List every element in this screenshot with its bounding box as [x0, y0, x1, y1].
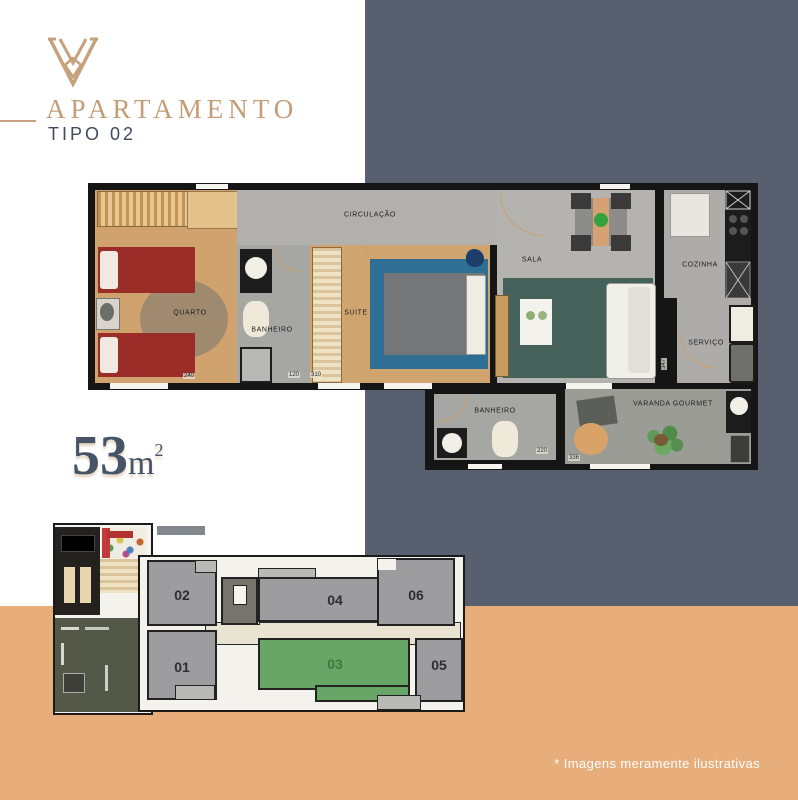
banheiro1-shower [240, 347, 272, 383]
kids-room-shelf [107, 531, 133, 538]
window-quarto-top [196, 184, 228, 189]
gourmet-counter [61, 535, 95, 552]
quarto-stool [100, 303, 114, 321]
sala-table-plant-2 [538, 311, 547, 320]
gym-equipment-3 [85, 627, 109, 630]
window-banheiro2-bottom [468, 464, 502, 469]
suite-wardrobe [312, 247, 342, 383]
varanda-sink [730, 397, 748, 415]
quarto-wardrobe [97, 191, 189, 227]
unit-03-label: 03 [327, 656, 343, 672]
room-label-sala: SALA [522, 257, 542, 264]
cozinha-burner-4 [740, 227, 748, 235]
main-floor-plan: QUARTO CIRCULAÇÃO BANHEIRO SUITE SALA CO… [88, 183, 758, 470]
cozinha-burner-1 [729, 215, 737, 223]
unit-05-label: 05 [431, 657, 447, 673]
quarto-bed-2-pillow [100, 337, 118, 373]
brand-logo [44, 34, 102, 90]
door-sala-varanda [566, 383, 612, 389]
window-suite-bottom-1 [318, 383, 360, 389]
room-label-banheiro1: BANHEIRO [251, 327, 292, 334]
room-label-suite: SUITE [344, 310, 368, 317]
banheiro1-sink [245, 257, 267, 279]
keyplan-gym [55, 618, 151, 712]
page-title: APARTAMENTO [46, 94, 298, 125]
room-label-servico: SERVIÇO [688, 340, 724, 347]
servico-washer [729, 343, 755, 383]
cozinha-sink-icon [725, 190, 751, 210]
gym-equipment-2 [61, 643, 64, 665]
cozinha-cooktop-icon [725, 261, 751, 299]
unit-02-notch [195, 560, 217, 573]
varanda-plant-pot [654, 434, 668, 446]
key-plan: 02 01 04 06 03 05 [45, 515, 465, 730]
keyplan-elevator-cab [233, 585, 247, 605]
banheiro2-toilet [492, 421, 518, 457]
quarto-desk [187, 191, 239, 229]
page-subtitle: TIPO 02 [48, 124, 136, 145]
dining-chair-1 [571, 193, 591, 209]
window-quarto-bottom [110, 383, 168, 389]
unit-04-label: 04 [327, 592, 343, 608]
cozinha-fridge [670, 193, 710, 237]
varanda-fridge [730, 435, 750, 463]
servico-wall [668, 298, 677, 383]
dining-chair-3 [571, 235, 591, 251]
unit-02-label: 02 [174, 587, 190, 603]
gourmet-bench-1 [64, 567, 75, 603]
dim-banheiro2: 220 [536, 448, 548, 454]
dim-suite: 310 [310, 372, 322, 378]
cozinha-burner-2 [740, 215, 748, 223]
varanda-table [574, 423, 608, 455]
dim-varanda: 336 [568, 455, 580, 461]
unit-06-step [378, 559, 396, 570]
sala-sofa-cushions [628, 287, 650, 373]
sala-console [495, 295, 509, 377]
dining-chair-2 [611, 193, 631, 209]
room-label-cozinha: COZINHA [682, 262, 718, 269]
sala-table-plant-1 [526, 311, 535, 320]
gym-equipment-5 [105, 665, 108, 691]
dim-banheiro: 120 [288, 372, 300, 378]
keyplan-wall-bar [157, 526, 205, 535]
disclaimer: * Imagens meramente ilustrativas [554, 756, 760, 771]
dining-chair-4 [611, 235, 631, 251]
sala-coffee-table [520, 299, 552, 345]
quarto-bed-1-pillow [100, 251, 118, 289]
keyplan-stairs [100, 559, 140, 593]
sala-cozinha-wall [655, 190, 664, 245]
dim-quarto: 240 [183, 373, 195, 379]
gym-equipment-1 [61, 627, 79, 630]
room-label-banheiro2: BANHEIRO [474, 408, 515, 415]
dining-plant [594, 213, 608, 227]
window-sala-top [600, 184, 630, 189]
gourmet-bench-2 [80, 567, 91, 603]
suite-beanbag [466, 249, 484, 267]
title-accent-line [0, 120, 36, 122]
servico-tank [729, 305, 755, 343]
window-suite-bottom-2 [384, 383, 432, 389]
suite-bed-pillows [466, 275, 486, 355]
unit-01-label: 01 [174, 659, 190, 675]
banheiro2-sink [442, 433, 462, 453]
room-label-circulacao: CIRCULAÇÃO [344, 212, 396, 219]
unit-01-notch [175, 685, 215, 700]
room-label-varanda: VARANDA GOURMET [633, 401, 713, 408]
room-label-quarto: QUARTO [173, 310, 206, 317]
dim-servico: 347 [661, 358, 667, 370]
cozinha-burner-3 [729, 227, 737, 235]
window-varanda-bottom [590, 464, 650, 469]
unit-05-notch [377, 695, 421, 710]
unit-06-label: 06 [408, 587, 424, 603]
gym-equipment-4 [63, 673, 85, 693]
